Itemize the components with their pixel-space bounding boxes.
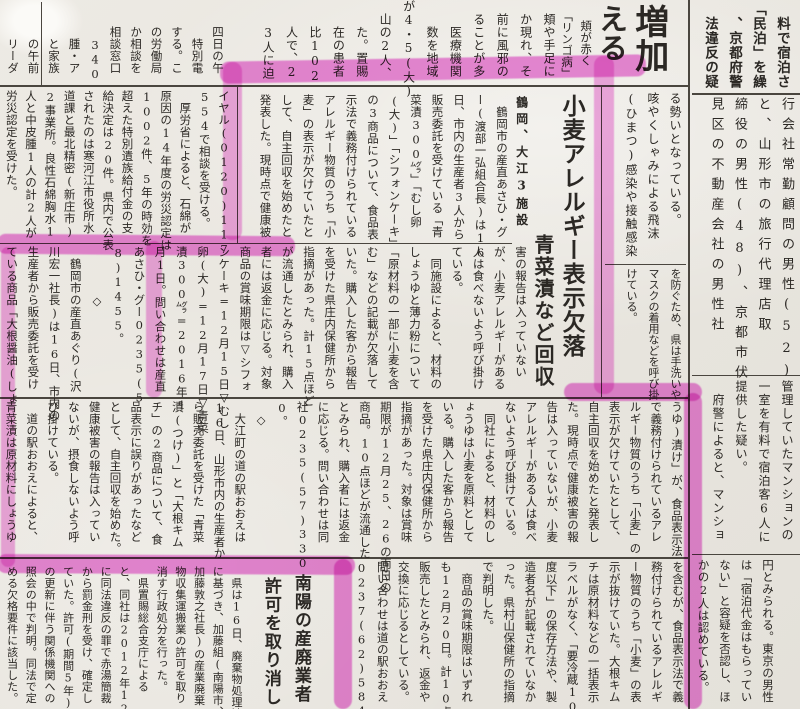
text-column: 品表示に誤りがあったなど	[125, 401, 146, 556]
text-column: 販売委託を受けている「青	[426, 94, 448, 242]
pink-highlighter-stroke	[1, 247, 15, 567]
text-column: 、京都府警	[722, 2, 746, 90]
text-column: 生産者から販売委託を受け	[22, 246, 43, 395]
text-column: 行会社常勤顧問の男性(52)	[775, 97, 799, 373]
text-column: 漬300㌘=2016年1	[171, 246, 192, 395]
text-column: しょうゆと薄力粉について	[404, 246, 425, 395]
text-column: 商品の賞味期限はいずれ	[456, 561, 477, 708]
pink-highlighter-stroke	[684, 393, 702, 709]
text-column: 超えた特別遺族給付金の支	[117, 90, 136, 242]
text-column: 指摘があった。対象は賞味	[396, 401, 417, 556]
text-column: 商品の賞味期限は▽シフォ	[234, 246, 255, 395]
text-column: 発表した。現時点で健康被	[254, 94, 276, 242]
text-column: 鶴岡市の産直あぐり(沢	[65, 246, 86, 395]
text-column: 照会の中で判明。同法で定	[21, 566, 40, 708]
text-column: に応じる。問い合わせは同	[313, 401, 334, 556]
text-column: の更新に伴う関係機関への	[39, 566, 58, 708]
text-column: 道課と最北精密(新庄市)	[59, 90, 78, 242]
text-column: 咳やくしゃみによる飛沫	[642, 92, 664, 264]
text-column: 道の駅おおえによると、	[22, 401, 43, 556]
text-column: 原因の14年度の労災認定は	[156, 90, 175, 242]
text-column: 2事業所。良性石綿胸水1	[40, 90, 59, 242]
text-column: 1002件、5年の時効を	[137, 90, 156, 242]
text-column: ないが、摂食しないよう呼	[63, 401, 84, 556]
nanyo-article-body: 県は16日、廃棄物処理法に基づき、加藤組(南陽市、加藤敦之社長)の産業廃棄物収集…	[0, 566, 245, 708]
text-column: 8)1455。	[107, 246, 128, 395]
text-column: 漬(つけ)」と「大根キム	[167, 401, 188, 556]
text-column: されたのは寒河江市役所水	[79, 90, 98, 242]
text-column: ー物質のうち「小麦」の表	[625, 561, 646, 708]
text-column: 料で宿泊さ	[770, 2, 794, 90]
text-column: 16日、山形市内の生産者か	[209, 401, 230, 556]
increase-article-body-band2: を防ぐため、県は手洗いやマスクの着用などを呼び掛けている。	[602, 268, 686, 395]
text-column: ない」と容疑を否認し、ほ	[714, 559, 736, 708]
increase-article-body-band1: る勢いとなっている。咳やくしゃみによる飛沫(ひまつ)感染や接触感染	[602, 92, 686, 264]
text-column: 県は16日、廃棄物処理法	[226, 566, 245, 708]
minpaku-article-top-fragments: 料で宿泊さ「民泊」を繰 、京都府警 法違反の疑	[694, 2, 794, 90]
text-column: ていた。許可(期間5年)	[58, 566, 77, 708]
text-column: 社0235(57)330	[292, 401, 313, 556]
text-column: 0237(62)5845。	[351, 561, 372, 708]
text-column: 県置賜総合支庁による	[133, 566, 152, 708]
text-column: 相談窓口	[105, 2, 126, 84]
text-column: 交換に応じるとしている。	[393, 561, 414, 708]
text-column: か相談を	[126, 2, 147, 84]
wheat-article-subhead: 青菜漬など回収	[532, 234, 553, 388]
text-column: る勢いとなっている。	[664, 92, 686, 264]
text-column: ◇	[250, 401, 271, 556]
minpaku-article-band3: 円とみられる。東京の男性は「宿泊代金はもらっていない」と容疑を否認し、ほかの2人…	[692, 559, 778, 708]
text-column: 示が抜けていた。大根キム	[604, 561, 625, 708]
text-column: 加藤敦之社長)の産業廃棄	[189, 566, 208, 708]
text-column: 人と中皮腫1人の計2人が	[21, 90, 40, 242]
text-column: び掛けている。	[42, 401, 63, 556]
text-column: 労災認定を受けた。	[1, 90, 20, 242]
newspaper-scan: 四日の午 特別電 する。こ の労働局 か相談を 相談窓口 340 腫・ア と家族…	[0, 0, 800, 709]
pink-highlighter-stroke	[564, 383, 702, 401]
text-column: ルギー物質のうち「小麦」の	[625, 401, 646, 556]
text-column: 造者名が記載されていなか	[519, 561, 540, 708]
text-column: 0。	[271, 401, 292, 556]
text-column: して、自主回収を始めたと	[276, 94, 298, 242]
text-column: として、自主回収を始めた。	[105, 401, 126, 556]
nanyo-headline-line2: 許可を取り消し	[261, 577, 279, 707]
text-column: の3商品について、食品表	[362, 94, 384, 242]
text-column: とみられ、購入者には返金	[333, 401, 354, 556]
text-column: む」などの記載が欠落して	[361, 246, 382, 395]
text-column: 管理していたマンションの	[775, 380, 798, 550]
text-column: と、同社は2012年12月	[114, 566, 133, 708]
text-column: から罰金刑を受け、確定し	[77, 566, 96, 708]
text-column: った。県村山保健所の指摘	[498, 561, 519, 708]
wheat-article-headline: 小麦アレルギー表示欠落	[559, 94, 583, 358]
text-column: が、小麦アレルギーがある	[489, 246, 510, 395]
nanyo-headline-line1: 南陽の産廃業者	[291, 574, 309, 704]
text-column: 務付けられているアレルギ	[646, 561, 667, 708]
increase-headline-partial: える	[596, 4, 626, 62]
wheat-article-kicker: 鶴岡、大江3施設	[515, 96, 528, 230]
minpaku-article-band2: 管理していたマンションの一室を有料で宿泊客6人に提供した疑い。 府警によると、マ…	[692, 380, 798, 550]
text-column: 腫・ア	[64, 2, 85, 84]
text-column: に同法違反の罪で赤湯簡裁	[95, 566, 114, 708]
text-column: けている。	[620, 268, 642, 395]
text-column: ラベルがなく、「要冷蔵10	[561, 561, 582, 708]
horizontal-rule	[605, 264, 686, 265]
text-column: リーダ	[3, 2, 24, 84]
text-column: を防ぐため、県は手洗いや	[664, 268, 686, 395]
text-column: 示法で義務付けられている	[340, 94, 362, 242]
text-column: 厚労省によると、石綿が	[175, 90, 194, 242]
text-column: 者には返金に応じる。対象	[255, 246, 276, 395]
asbestos-article-body: イヤル(0120)117554で相談を受ける。 厚労省によると、石綿が原因の14…	[0, 90, 233, 242]
text-column: 物収集運搬業の許可を取り	[170, 566, 189, 708]
text-column: アレルギーがある人は食べ	[521, 401, 542, 556]
text-column: 一室を有料で宿泊客6人に	[752, 380, 775, 550]
text-column: 問い合わせは道の駅おおえ	[372, 561, 393, 708]
text-column: に基づき、加藤組(南陽市、	[208, 566, 227, 708]
text-column: 卵(大)=12月17日▽青菜	[192, 246, 213, 395]
text-column: も12月20日。計10点ほどを	[435, 561, 456, 708]
text-column: 法違反の疑	[698, 2, 722, 90]
wheat-article-band2: 害の報告は入っていないが、小麦アレルギーがある人は食べないよう呼び掛けている。 …	[0, 246, 531, 395]
wheat-article-band4: を含むが、食品表示法で義務付けられているアレルギー物質のうち「小麦」の表示が抜け…	[350, 561, 688, 708]
text-column: ンケーキ=12月15日▽むし	[213, 246, 234, 395]
text-column: ょうゆは小麦を原料として	[458, 401, 479, 556]
pink-highlighter-stroke	[0, 554, 355, 575]
wheat-article-band3: うゆ)漬け」が、食品表示法で義務付けられているアレルギー物質のうち「小麦」の表示…	[0, 401, 687, 556]
text-column: 見区の不動産会社の男性社	[704, 97, 728, 373]
text-column: 麦」の表示が欠けていたと	[297, 94, 319, 242]
text-column: 販売したとみられ、返金や	[414, 561, 435, 708]
text-column: 害の報告は入っていない	[510, 246, 531, 395]
text-column: を受けた県庄内保健所から	[319, 246, 340, 395]
horizontal-rule	[692, 93, 800, 95]
text-column: と家族	[44, 2, 65, 84]
text-column: 商品。10点ほどが流通した	[354, 401, 375, 556]
text-column: 円とみられる。東京の男性	[757, 559, 779, 708]
text-column: は「宿泊代金はもらってい	[735, 559, 757, 708]
text-column: 期限が12月25、26の両日の	[375, 401, 396, 556]
minpaku-article-band1: 行会社常勤顧問の男性(52)と、山形市の旅行代理店取締役の男性(48)、京都市伏…	[692, 97, 798, 373]
horizontal-rule	[692, 554, 800, 555]
text-column: 人は食べないよう呼び掛け	[467, 246, 488, 395]
text-column: 日、市内の生産者3人から	[448, 94, 470, 242]
pink-highlighter-stroke	[594, 56, 614, 394]
text-column: める欠格要件に該当した。	[2, 566, 21, 708]
text-column: 特別電	[187, 2, 208, 84]
text-column: と、山形市の旅行代理店取	[751, 97, 775, 373]
text-column: アレルギー物質のうち「小	[319, 94, 341, 242]
pink-highlighter-stroke	[146, 241, 162, 398]
text-column: 大江町の道の駅おおえは	[229, 401, 250, 556]
text-column: 同社によると、材料のし	[479, 401, 500, 556]
text-column: 「原材料の一部に小麦を含	[383, 246, 404, 395]
text-column: 表示が欠けていたとして、	[604, 401, 625, 556]
text-column: いる。購入した客から報告	[437, 401, 458, 556]
text-column: ている。	[446, 246, 467, 395]
text-column: 同施設によると、材料の	[425, 246, 446, 395]
text-column: する。こ	[167, 2, 188, 84]
text-column: チ」の2商品について、食	[146, 401, 167, 556]
text-column: 自主回収を始めたと発表し	[583, 401, 604, 556]
text-column: 川宏一社長)は16日、市内の	[43, 246, 64, 395]
text-column: マスクの着用などを呼び掛	[642, 268, 664, 395]
pink-highlighter-stroke	[334, 559, 352, 709]
text-column: 鶴岡市の産直あさひ・グ	[491, 94, 513, 242]
text-column: 府警によると、マンショ	[706, 380, 729, 550]
text-column: 給決定は20件。県内で公表	[98, 90, 117, 242]
text-column: ら販売委託を受けた「青菜	[188, 401, 209, 556]
text-column: (大)」「シフォンケーキ」	[383, 94, 405, 242]
text-column: た。現時点で健康被害の報	[562, 401, 583, 556]
text-column: 告は入っていないが、小麦	[541, 401, 562, 556]
text-column: ないよう呼び掛けている。	[500, 401, 521, 556]
text-column: が流通したとみられ、購入	[277, 246, 298, 395]
text-column: 締役の男性(48)、京都市伏	[728, 97, 752, 373]
text-column: 健康被害の報告は入ってい	[84, 401, 105, 556]
text-column: の午前	[23, 2, 44, 84]
pink-highlighter-stroke	[223, 62, 242, 240]
text-column: で判明した。	[477, 561, 498, 708]
text-column: で義務付けられているアレ	[645, 401, 666, 556]
text-column: 指摘があった。計15点ほど	[298, 246, 319, 395]
text-column: 菜漬300㌘」「むし卵	[405, 94, 427, 242]
asbestos-article-top-fragments: 四日の午 特別電 する。こ の労働局 か相談を 相談窓口 340 腫・ア と家族…	[0, 2, 228, 84]
text-column: いた。購入した客から報告	[340, 246, 361, 395]
text-column: を受けた県庄内保健所から	[417, 401, 438, 556]
text-column: ー(渡部一弘組合長)は16	[469, 94, 491, 242]
text-column: ◇	[86, 246, 107, 395]
text-column: 554で相談を受ける。	[194, 90, 213, 242]
wheat-article-band1: 鶴岡市の産直あさひ・グー(渡部一弘組合長)は16日、市内の生産者3人から販売委託…	[253, 94, 512, 242]
text-column: 消す行政処分を行った。	[151, 566, 170, 708]
text-column: 「民泊」を繰	[746, 2, 770, 90]
text-column: の労働局	[146, 2, 167, 84]
text-column: (ひまつ)感染や接触感染	[620, 92, 642, 264]
text-column: 340	[85, 2, 106, 84]
text-column: 提供した疑い。	[729, 380, 752, 550]
text-column: 度以下」の保存方法や、製	[540, 561, 561, 708]
text-column: チは原材料などの一括表示	[583, 561, 604, 708]
